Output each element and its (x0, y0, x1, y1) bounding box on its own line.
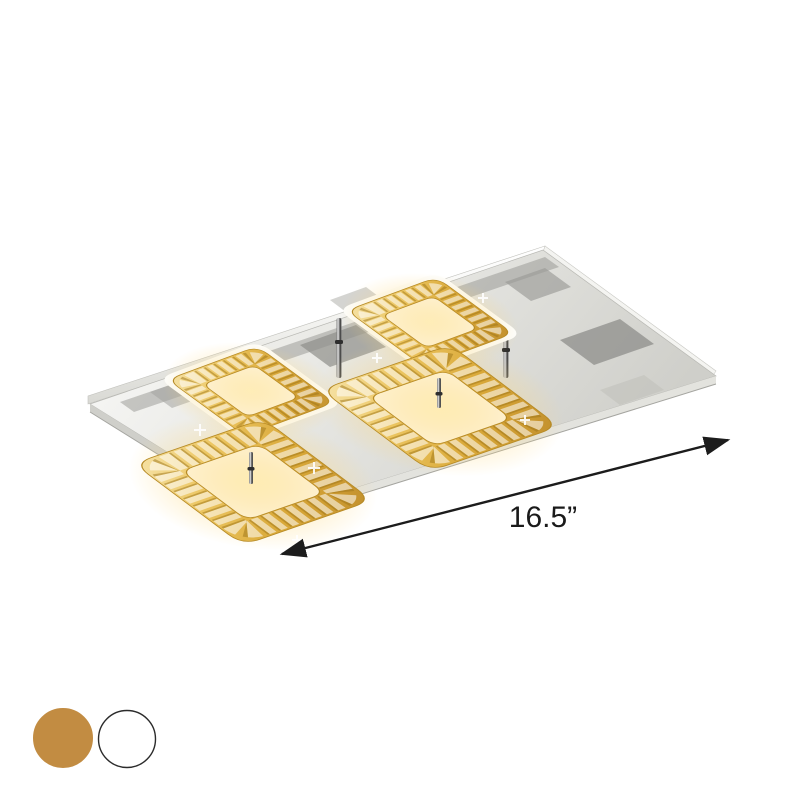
color-swatch-gold[interactable] (34, 709, 93, 768)
product-photo-canvas: 16.5” (0, 0, 800, 800)
dimension-label: 16.5” (509, 501, 577, 534)
color-swatches (34, 709, 156, 768)
color-swatch-white[interactable] (99, 711, 156, 768)
product-photo: 16.5” (0, 0, 800, 800)
